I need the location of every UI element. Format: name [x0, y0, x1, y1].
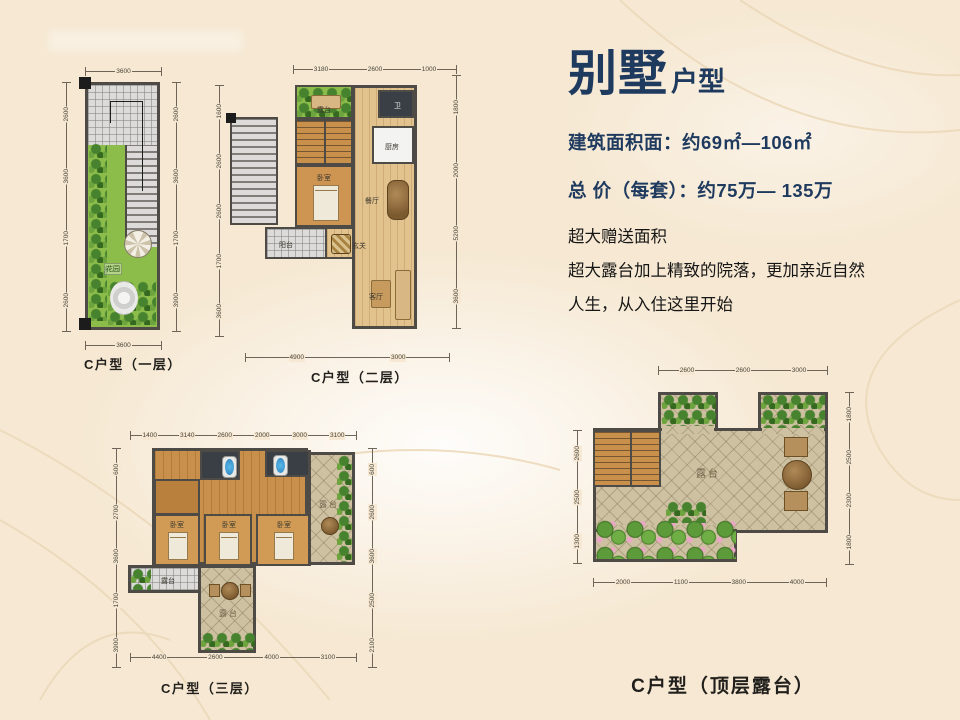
terrace-room: 露台: [295, 85, 353, 119]
desc-line: 人生，从入住这里开始: [568, 288, 928, 322]
garden-fountain: [110, 281, 138, 315]
dim-value: 1700: [62, 230, 71, 246]
bathtub: [222, 456, 237, 478]
room-label-terrace: 露台: [219, 608, 239, 619]
dim-value: 2500: [573, 489, 582, 505]
terrace-chair: [240, 584, 251, 597]
dim-value: 3600: [215, 303, 224, 319]
dim-left: 260025001300: [573, 430, 582, 564]
stair-path-line: [110, 101, 142, 102]
dim-top: 318026001000: [293, 65, 457, 74]
spec-building-area: 建筑面积面：约69㎡—106㎡: [568, 129, 928, 155]
room-label-bedroom: 卧室: [222, 520, 236, 530]
room-label-balcony: 阳台: [279, 240, 293, 250]
courtyard-unit: 花园: [85, 82, 160, 330]
room-label-terrace: 露台: [317, 105, 331, 115]
bedroom-2: 卧室: [204, 514, 252, 566]
dim-right: 1800250023001800: [845, 392, 854, 565]
dim-value: 2000: [254, 432, 270, 440]
dim-value: 1800: [452, 99, 461, 115]
entry-patio: [88, 85, 157, 145]
dim-value: 1100: [673, 579, 689, 587]
dim-value: 2600: [367, 66, 383, 74]
bathroom: [265, 450, 311, 477]
dim-top: 260026003000: [658, 366, 828, 375]
roof-stairwell: [593, 430, 661, 487]
roof-table: [782, 460, 812, 490]
room-label-bedroom: 卧室: [317, 173, 331, 183]
room-label-terrace: 露台: [696, 465, 720, 480]
dim-value: 3140: [179, 432, 195, 440]
stair-path-line: [142, 101, 143, 191]
roof-plants: [761, 394, 825, 428]
terrace-table: [221, 582, 239, 600]
dim-value: 1700: [172, 230, 181, 246]
dim-value: 2500: [368, 592, 377, 608]
dim-value: 5200: [452, 225, 461, 241]
dim-value: 2500: [845, 449, 854, 465]
dim-value: 3000: [390, 354, 406, 362]
dim-bottom: 49003000: [245, 353, 450, 362]
dim-value: 1800: [845, 406, 854, 422]
dining-table: [387, 180, 409, 220]
dim-bottom: 3600: [85, 341, 162, 350]
foyer-carpet: [331, 234, 351, 254]
plan-caption-second-floor: C户型（二层）: [270, 367, 450, 386]
dim-value: 2600: [735, 367, 751, 375]
title-suffix: 户型: [671, 69, 725, 96]
dim-value: 4400: [151, 654, 167, 662]
roof-garden-lotus: [596, 519, 736, 559]
terrace-right: 露台: [308, 452, 355, 565]
room-label-dining: 餐厅: [365, 196, 379, 206]
stair-path-line: [110, 101, 111, 123]
dim-value: 1700: [215, 253, 224, 269]
internal-stairs: [154, 479, 200, 515]
room-label-bedroom: 卧室: [170, 520, 184, 530]
dim-left: 16002600260017003600: [215, 85, 224, 337]
wc: 卫: [378, 90, 414, 118]
bathroom: [200, 450, 240, 480]
dim-value: 2600: [217, 432, 233, 440]
floorplan-second-floor: 318026001000 16002600260017003600 180020…: [215, 55, 467, 390]
bed: [274, 532, 294, 560]
dim-value: 2000: [615, 579, 631, 587]
roof-chair: [784, 437, 808, 457]
dim-value: 2600: [368, 504, 377, 520]
terrace-bottom: 露台: [198, 565, 256, 653]
bedroom: 卧室: [295, 165, 353, 227]
dim-value: 2100: [368, 637, 377, 653]
terrace-plants: [131, 568, 151, 590]
dim-value: 2000: [452, 162, 461, 178]
dim-value: 1800: [845, 534, 854, 550]
dim-value: 3600: [62, 168, 71, 184]
dim-bottom: 4400260040003100: [130, 653, 357, 662]
roof-chair: [784, 491, 808, 511]
dim-value: 3600: [112, 548, 121, 564]
dim-value: 2600: [207, 654, 223, 662]
dim-bottom: 2000110038004000: [593, 578, 827, 587]
desc-line: 超大赠送面积: [568, 220, 928, 254]
dim-value: 3000: [292, 432, 308, 440]
dim-value: 3180: [313, 66, 329, 74]
dim-value: 3900: [172, 292, 181, 308]
dim-right: 6002600360025002100: [368, 448, 377, 668]
living-sofa: [395, 270, 411, 320]
dim-value: 4000: [789, 579, 805, 587]
room-label-living: 客厅: [369, 292, 383, 302]
title-main: 别墅: [568, 50, 668, 99]
dim-value: 2600: [679, 367, 695, 375]
plan-caption-first-floor: C户型（一层）: [58, 354, 208, 373]
gazebo-parasol: [124, 230, 152, 258]
dim-value: 3600: [115, 342, 131, 350]
terrace-chair: [209, 584, 220, 597]
room-label-kitchen: 厨房: [385, 142, 399, 152]
dim-right: 2600360017003900: [172, 82, 181, 332]
dim-value: 2300: [845, 492, 854, 508]
plan-caption-roof: C户型（顶层露台）: [558, 671, 888, 698]
dim-left: 6002700360017003900: [112, 448, 121, 668]
bedroom-1: 卧室: [154, 514, 200, 566]
garden-shrub-strip: [89, 143, 107, 321]
kitchen: 厨房: [372, 126, 414, 164]
dim-value: 3900: [112, 637, 121, 653]
page-title: 别墅 户型: [568, 50, 725, 99]
external-staircase: [230, 117, 278, 225]
dim-value: 3600: [115, 68, 131, 76]
dim-value: 600: [112, 463, 121, 476]
dim-value: 3100: [329, 432, 345, 440]
dim-value: 2600: [215, 203, 224, 219]
room-label-terrace: 露台: [161, 576, 175, 586]
floorplan-first-floor: 3600 2600360017002600 2600360017003900 3…: [58, 58, 238, 380]
dim-value: 2700: [112, 504, 121, 520]
bedroom-3: 卧室: [256, 514, 311, 566]
dim-value: 2600: [573, 445, 582, 461]
dim-left: 2600360017002600: [62, 82, 71, 332]
description-paragraph: 超大赠送面积 超大露台加上精致的院落，更加亲近自然 人生，从入住这里开始: [568, 220, 928, 322]
column-marker: [226, 113, 236, 123]
room-label-wc: 卫: [394, 101, 401, 111]
dim-value: 4000: [263, 654, 279, 662]
dim-top: 3600: [85, 67, 162, 76]
roof-plants: [666, 501, 706, 523]
column-marker: [79, 318, 91, 330]
dim-value: 3800: [731, 579, 747, 587]
dim-value: 3600: [452, 288, 461, 304]
dim-value: 4900: [289, 354, 305, 362]
dim-value: 3000: [791, 367, 807, 375]
column-marker: [79, 77, 91, 89]
room-label-terrace: 露台: [319, 499, 339, 510]
internal-stairs: [295, 119, 353, 165]
terrace-plants: [337, 455, 352, 562]
dim-value: 3100: [320, 654, 336, 662]
bed: [219, 532, 239, 560]
faded-watermark: [48, 30, 243, 52]
dim-value: 1600: [215, 103, 224, 119]
dim-value: 3600: [368, 548, 377, 564]
dim-value: 2600: [62, 292, 71, 308]
dim-value: 1400: [142, 432, 158, 440]
plan-caption-third-floor: C户型（三层）: [110, 678, 310, 697]
bedroom-wing: 卧室 卧室 卧室: [152, 448, 308, 565]
terrace-chair: [321, 517, 339, 535]
dim-value: 1700: [112, 592, 121, 608]
dim-right: 1800200052003600: [452, 75, 461, 329]
dim-top: 140031402600200030003100: [130, 431, 357, 440]
terrace-plants: [201, 632, 255, 650]
dim-value: 1300: [573, 533, 582, 549]
dim-value: 2600: [62, 106, 71, 122]
desc-line: 超大露台加上精致的院落，更加亲近自然: [568, 254, 928, 288]
bed: [168, 532, 188, 560]
terrace-left: 露台: [128, 565, 202, 593]
dim-value: 2600: [172, 106, 181, 122]
roof-plants: [662, 394, 716, 426]
spec-total-price: 总 价（每套）：约75万— 135万: [568, 177, 928, 203]
floorplan-roof-terrace: 260026003000 260025001300 18002500230018…: [558, 333, 898, 713]
dim-value: 1000: [421, 66, 437, 74]
room-label-foyer: 玄关: [352, 241, 366, 251]
dim-value: 2600: [215, 153, 224, 169]
floorplan-third-floor: 140031402600200030003100 600270036001700…: [110, 423, 385, 718]
dim-value: 3600: [172, 168, 181, 184]
room-label-bedroom: 卧室: [277, 520, 291, 530]
main-living-wing: 卫 厨房 餐厅 客厅: [352, 85, 417, 329]
room-label-garden: 花园: [104, 263, 122, 275]
dim-value: 600: [368, 463, 377, 476]
bathtub: [273, 455, 288, 476]
brochure-slide: 别墅 户型 建筑面积面：约69㎡—106㎡ 总 价（每套）：约75万— 135万…: [0, 0, 960, 720]
bed: [313, 185, 339, 221]
terrace-floor: [662, 425, 714, 434]
balcony: 阳台: [265, 227, 327, 259]
